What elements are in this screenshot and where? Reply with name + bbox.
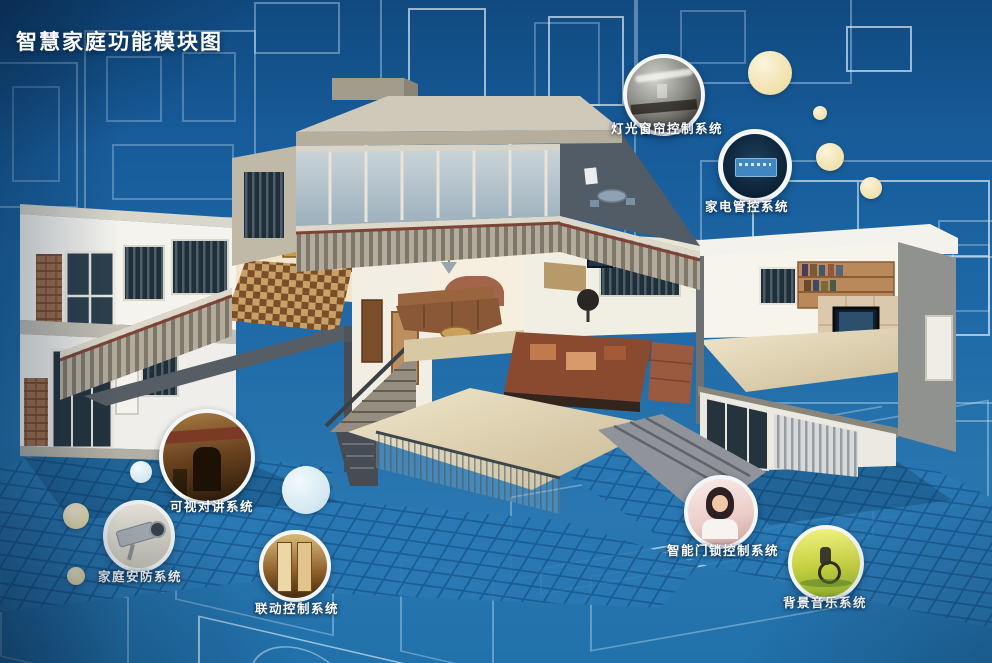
appliance-control-photo-icon <box>718 129 792 203</box>
background-music-photo-icon <box>788 525 864 601</box>
background-music-label: 背景音乐系统 <box>740 592 910 611</box>
page-title: 智慧家庭功能模块图 <box>16 26 223 56</box>
home-security-photo-icon <box>103 500 175 572</box>
smart-door-lock-label: 智能门锁控制系统 <box>638 540 808 559</box>
video-intercom-photo-icon <box>159 409 255 505</box>
decor-circle <box>63 503 89 529</box>
linkage-control-photo-icon <box>259 530 331 602</box>
decor-circle <box>813 106 827 120</box>
smart-door-lock-photo-icon <box>684 475 758 549</box>
right-wing-tv-room <box>696 224 958 477</box>
smart-home-infographic: 灯光窗帘控制系统 家电管控系统 可视对讲系统 家庭安防系统 联动控制系统 智能门… <box>0 0 992 663</box>
linkage-control-label: 联动控制系统 <box>212 598 382 617</box>
lighting-curtain-label: 灯光窗帘控制系统 <box>582 118 752 137</box>
decor-circle <box>860 177 882 199</box>
appliance-control-label: 家电管控系统 <box>662 196 832 215</box>
decor-circle <box>130 461 152 483</box>
decor-circle <box>748 51 792 95</box>
home-security-label: 家庭安防系统 <box>55 566 225 585</box>
decor-circle <box>816 143 844 171</box>
